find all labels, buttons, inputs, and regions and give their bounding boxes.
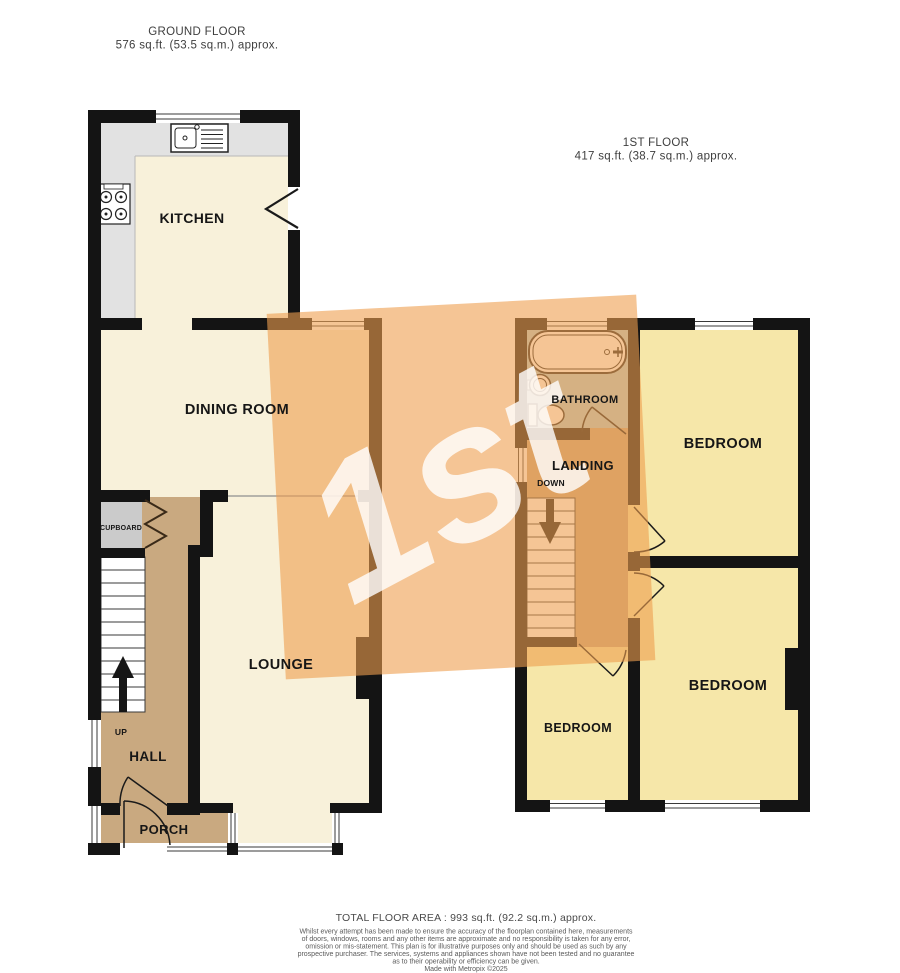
porch-front-window — [167, 843, 227, 855]
kitchen-floor — [135, 156, 288, 318]
bedroom-small-window — [550, 800, 605, 812]
porch-label: PORCH — [140, 822, 189, 837]
bedroom-large-window — [665, 800, 760, 812]
first-floor-title: 1ST FLOOR — [623, 137, 689, 149]
lounge-label: LOUNGE — [249, 657, 313, 673]
wall-segment — [88, 548, 145, 558]
wall-segment — [88, 318, 142, 330]
disclaimer-line: prospective purchaser. The services, sys… — [298, 951, 635, 958]
wall-segment — [88, 490, 150, 502]
disclaimer-line: Whilst every attempt has been made to en… — [299, 929, 633, 936]
hall-window — [88, 720, 101, 767]
porch-side-window — [88, 806, 101, 843]
bathroom-label: BATHROOM — [551, 394, 618, 406]
bedroom-large-label: BEDROOM — [689, 678, 768, 694]
bay-window-floor — [228, 803, 342, 843]
up-label: UP — [115, 727, 127, 737]
bedroom-small-label: BEDROOM — [544, 721, 612, 735]
gf-staircase — [101, 557, 145, 712]
cupboard-floor — [101, 498, 142, 548]
disclaimer-line: of doors, windows, rooms and any other i… — [302, 936, 631, 943]
watermark: 1st — [267, 295, 656, 680]
kitchen-label: KITCHEN — [159, 210, 224, 226]
disclaimer-line: as to their operability or efficiency ca… — [392, 959, 539, 966]
bedroom-top-window — [695, 318, 753, 330]
cupboard-label: CUPBOARD — [100, 525, 142, 532]
kitchen-hob — [97, 184, 130, 224]
footer: TOTAL FLOOR AREA : 993 sq.ft. (92.2 sq.m… — [298, 912, 635, 973]
wall-segment — [188, 545, 200, 815]
chimney-breast — [785, 648, 798, 710]
first-floor-area: 417 sq.ft. (38.7 sq.m.) approx. — [575, 151, 738, 163]
down-label: DOWN — [537, 478, 565, 488]
floorplan-drawing: 1st KITCHEN DINING ROOM LOUNGE HALL PORC… — [0, 0, 900, 973]
wall-segment — [628, 556, 810, 568]
bedroom-top-label: BEDROOM — [684, 436, 763, 452]
kitchen-sink — [171, 124, 228, 152]
landing-label: LANDING — [552, 458, 614, 473]
credit-line: Made with Metropix ©2025 — [424, 965, 507, 973]
ground-floor-area: 576 sq.ft. (53.5 sq.m.) approx. — [116, 40, 279, 52]
wall-segment — [88, 843, 120, 855]
floorplan-page: 1st KITCHEN DINING ROOM LOUNGE HALL PORC… — [0, 0, 900, 973]
ground-floor-title: GROUND FLOOR — [148, 26, 246, 38]
wall-segment — [167, 803, 188, 815]
dining-room-label: DINING ROOM — [185, 402, 289, 418]
hall-label: HALL — [129, 749, 167, 764]
disclaimer-line: omission or mis-statement. This plan is … — [305, 944, 627, 951]
wall-segment — [338, 803, 382, 813]
kitchen-window — [156, 110, 240, 123]
wall-segment — [288, 110, 300, 187]
total-floor-area: TOTAL FLOOR AREA : 993 sq.ft. (92.2 sq.m… — [336, 912, 597, 924]
wall-segment — [188, 803, 233, 813]
